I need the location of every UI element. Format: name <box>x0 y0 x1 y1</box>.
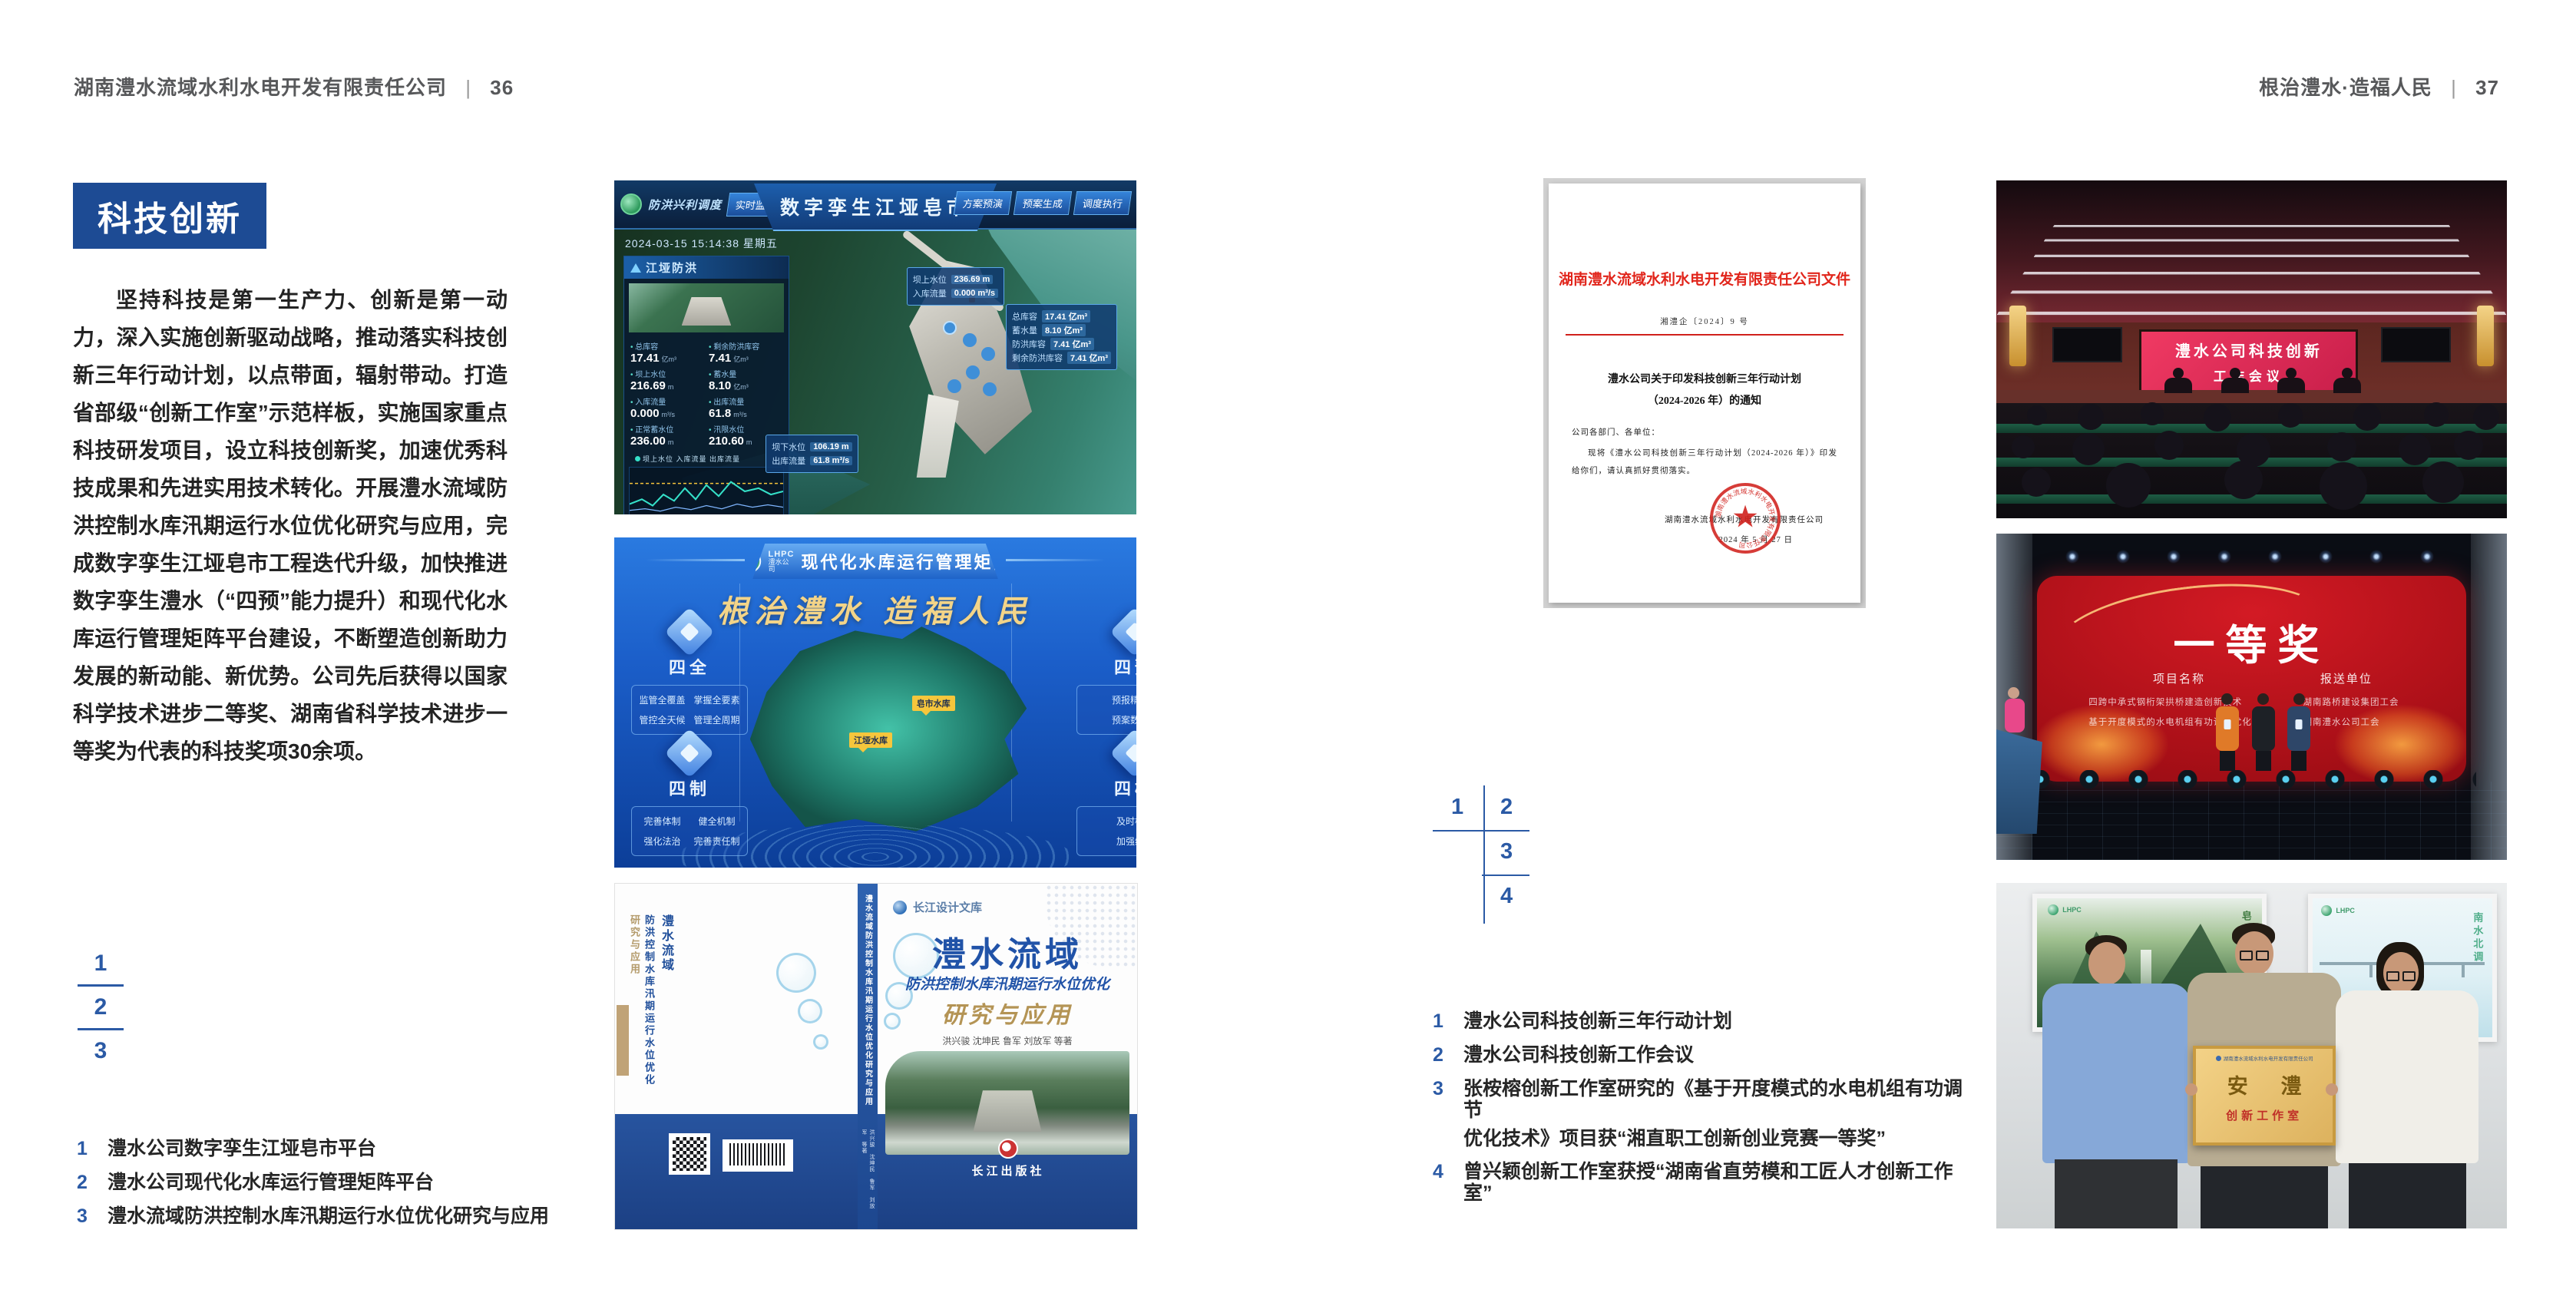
winner-silhouette <box>2287 693 2310 771</box>
caption-text: 澧水公司数字孪生江垭皂市平台 <box>107 1138 376 1160</box>
front-tail: 研究与应用 <box>878 996 1137 1030</box>
company-name: 湖南澧水流域水利水电开发有限责任公司 <box>74 76 447 99</box>
person-torso-blue-polo <box>2042 984 2191 1163</box>
caption-number: 1 <box>1433 1010 1451 1033</box>
module-panel: 完善体制 健全机制 强化法治 完善责任制 <box>631 806 748 856</box>
stat-cell: 蓄水量8.10亿m³ <box>709 368 782 392</box>
module-panel: 预报精准化 预案数字化 <box>1076 685 1136 735</box>
module-title: 四全 <box>631 654 748 679</box>
studio-plaque: 湖南澧水流域水利水电开发有限责任公司 安 澧 创新工作室 <box>2193 1046 2336 1146</box>
person-pants <box>2201 1166 2328 1228</box>
book-spine: 澧水流域防洪控制水库汛期运行水位优化研究与应用 洪兴骏 沈坤民 鲁军 刘放军 等… <box>858 884 878 1229</box>
photo-meeting: 澧水公司科技创新 工作会议 <box>1996 180 2507 518</box>
dam-thumbnail <box>629 283 784 332</box>
module-icon <box>664 607 714 656</box>
caption-text: 澧水流域防洪控制水库汛期运行水位优化研究与应用 <box>107 1205 549 1228</box>
figure-key-number: 2 <box>73 992 128 1023</box>
front-subtitle: 防洪控制水库汛期运行水位优化 <box>878 973 1137 994</box>
person-head <box>2088 942 2125 985</box>
page-left-header: 湖南澧水流域水利水电开发有限责任公司 | 36 <box>74 72 514 101</box>
publisher-brand: 长江设计文库 <box>893 899 982 915</box>
caption-number: 1 <box>77 1138 95 1160</box>
dashboard-topbar: 防洪兴利调度 实时监测 洪水预报 防洪预警 数字孪生江垭皂市 方案预演 预案生成… <box>614 180 1136 230</box>
figure-key-number: 1 <box>73 948 128 979</box>
nav-button[interactable]: 预案生成 <box>1014 191 1072 215</box>
header-separator: | <box>465 76 471 99</box>
intro-paragraph: 坚持科技是第一生产力、创新是第一动力，深入实施创新驱动战略，推动落实科技创新三年… <box>73 281 508 770</box>
header-wing <box>1006 559 1105 561</box>
caption-row: 2 澧水公司现代化水库运行管理矩阵平台 <box>77 1172 568 1194</box>
book-title-vertical: 澧水流域 <box>656 914 675 1106</box>
gate-markers <box>943 321 957 335</box>
figure-key-vline <box>1483 785 1485 924</box>
module-item: 预报精准化 <box>1082 693 1136 706</box>
module-title: 四预 <box>1076 654 1136 679</box>
person-silhouette <box>2221 378 2249 393</box>
page-number-left: 36 <box>490 76 514 99</box>
panel-header: 江垭防洪 <box>624 256 789 279</box>
module-panel: 及时检验 加强维护 <box>1076 806 1136 856</box>
caption-text: 张桉榕创新工作室研究的《基于开度模式的水电机组有功调节 优化技术》项目获“湘直职… <box>1463 1078 1970 1149</box>
figure-key-number: 4 <box>1500 884 1513 909</box>
module-title: 四制 <box>631 775 748 800</box>
caption-number: 2 <box>1433 1044 1451 1066</box>
tan-block <box>617 1005 629 1076</box>
presenter-silhouette <box>2252 693 2275 771</box>
dashboard-side-panel: 江垭防洪 总库容17.41亿m³ 剩余防洪库容7.41亿m³ 坝上水位216.6… <box>623 256 789 514</box>
module-icon <box>1109 728 1136 778</box>
host-silhouette <box>2008 687 2019 699</box>
figure-key-number: 3 <box>73 1036 128 1066</box>
document-title-line2: （2024-2026 年）的通知 <box>1549 392 1860 408</box>
award-unit: 湖南路桥建设集团工会 <box>2303 696 2399 708</box>
glasses-icon <box>2240 951 2269 960</box>
plaque-org-line: 湖南澧水流域水利水电开发有限责任公司 <box>2196 1054 2333 1062</box>
page-number-right: 37 <box>2475 76 2499 99</box>
chart-svg <box>630 468 783 514</box>
module-label: 防洪兴利调度 <box>648 197 722 213</box>
front-authors: 洪兴骏 沈坤民 鲁军 刘放军 等著 <box>878 1034 1137 1047</box>
dashboard-logo-icon <box>620 193 642 215</box>
figure-key-divider <box>78 1028 124 1030</box>
hand <box>2326 1083 2338 1096</box>
book-subtitle-vertical: 防洪控制水库汛期运行水位优化 <box>642 914 656 1106</box>
chart-legend: 坝上水位 入库流量 出库流量 <box>624 452 789 464</box>
seal-star-icon: ★ <box>1731 499 1759 535</box>
module-title: 四检 <box>1076 775 1136 800</box>
caption-row: 2 澧水公司科技创新工作会议 <box>1433 1044 1970 1066</box>
front-title: 澧水流域 <box>878 927 1137 976</box>
figure-key-number: 1 <box>1451 795 1463 820</box>
figure-key-number: 3 <box>1500 839 1513 865</box>
lectern <box>1996 729 2042 834</box>
audience-row <box>2012 435 2035 458</box>
platform-title: 现代化水库运行管理矩阵 <box>801 549 1012 574</box>
back-cover-title: 澧水流域 防洪控制水库汛期运行水位优化 研究与应用 <box>627 914 675 1106</box>
desk-row <box>1996 458 2507 467</box>
caption-row: 1 澧水公司科技创新三年行动计划 <box>1433 1010 1970 1033</box>
caption-number: 3 <box>77 1205 95 1228</box>
nav-button[interactable]: 方案预演 <box>954 191 1012 215</box>
caption-list-right: 1 澧水公司科技创新三年行动计划 2 澧水公司科技创新工作会议 3 张桉榕创新工… <box>1433 1010 1970 1215</box>
audience-row <box>2022 468 2051 497</box>
bubble-decor <box>813 1034 828 1050</box>
module-siyu: 四预 预报精准化 预案数字化 <box>1076 614 1136 735</box>
host-silhouette <box>2005 699 2025 732</box>
bubble-decor <box>776 953 816 993</box>
module-item: 监管全覆盖 <box>637 693 688 706</box>
figure-key-right: 1 2 3 4 <box>1433 785 1536 927</box>
caption-text: 澧水公司现代化水库运行管理矩阵平台 <box>107 1172 434 1194</box>
person-silhouette <box>2277 378 2305 393</box>
poster-logo: LHPC <box>2048 904 2082 915</box>
wall-tv <box>2052 327 2121 362</box>
hand <box>2185 1083 2197 1096</box>
logo-sub: 澧水公司 <box>769 559 795 573</box>
person-silhouette <box>2164 378 2192 393</box>
document-title-line1: 澧水公司关于印发科技创新三年行动计划 <box>1549 371 1860 386</box>
stat-grid: 总库容17.41亿m³ 剩余防洪库容7.41亿m³ 坝上水位216.69m 蓄水… <box>624 337 789 452</box>
person-silhouette <box>2333 378 2361 393</box>
caption-text: 曾兴颖创新工作室获授“湖南省直劳模和工匠人才创新工作室” <box>1463 1161 1970 1204</box>
spine-title: 澧水流域防洪控制水库汛期运行水位优化研究与应用 <box>862 894 874 1125</box>
person-pants <box>2349 1163 2466 1229</box>
winner-silhouette <box>2216 693 2239 771</box>
caption-text: 澧水公司科技创新工作会议 <box>1463 1044 1694 1066</box>
stat-cell: 剩余防洪库容7.41亿m³ <box>709 340 782 365</box>
water-level-tooltip: 坝上水位236.69 m 入库流量0.000 m³/s <box>907 267 1004 306</box>
spine-authors: 洪兴骏 沈坤民 鲁军 刘放军 等著 <box>860 1129 875 1214</box>
dashboard-topbar-right: 方案预演 预案生成 调度执行 <box>955 191 1135 215</box>
caption-row: 3 澧水流域防洪控制水库汛期运行水位优化研究与应用 <box>77 1205 568 1228</box>
cover-dam-shape <box>973 1090 1041 1132</box>
module-item: 完善体制 <box>637 815 688 828</box>
figure-key-hline <box>1433 830 1529 832</box>
sail-icon <box>630 263 641 273</box>
publisher-mark: 长江出版社 <box>916 1139 1100 1179</box>
caption-row: 3 张桉榕创新工作室研究的《基于开度模式的水电机组有功调节 优化技术》项目获“湘… <box>1433 1078 1970 1149</box>
plaque-logo-icon <box>2216 1056 2221 1061</box>
photo-award: 一等奖 项目名称 报送单位 四跨中承式钢桁架拱桥建造创新技术 湖南路桥建设集团工… <box>1996 534 2507 860</box>
stat-cell: 入库流量0.000m³/s <box>630 395 704 420</box>
ceiling-lights <box>1996 225 2507 316</box>
person-torso-white-tee <box>2336 990 2478 1163</box>
award-col-header: 报送单位 <box>2320 670 2373 686</box>
figure-key-left: 1 2 3 <box>73 948 128 1066</box>
figure-dashboard: 防洪兴利调度 实时监测 洪水预报 防洪预警 数字孪生江垭皂市 方案预演 预案生成… <box>614 180 1136 514</box>
module-sizhi: 四制 完善体制 健全机制 强化法治 完善责任制 <box>631 736 748 856</box>
brand-label: 长江设计文库 <box>913 899 982 915</box>
header-separator: | <box>2451 76 2457 99</box>
figure-key-hline <box>1482 875 1529 876</box>
person-pants <box>2055 1159 2178 1228</box>
stat-cell: 出库流量61.8m³/s <box>709 395 782 420</box>
module-item: 强化法治 <box>637 835 688 848</box>
award-project: 基于开度模式的水电机组有功调节优化技术 <box>2088 716 2271 728</box>
dashboard-timestamp: 2024-03-15 15:14:38 星期五 <box>625 236 778 251</box>
award-title: 一等奖 <box>2037 611 2466 672</box>
caption-number: 3 <box>1433 1078 1451 1149</box>
stat-cell: 正常蓄水位236.00m <box>630 423 704 448</box>
caption-list-left: 1 澧水公司数字孪生江垭皂市平台 2 澧水公司现代化水库运行管理矩阵平台 3 澧… <box>77 1138 568 1239</box>
qr-pattern <box>673 1137 706 1171</box>
award-col-header: 项目名称 <box>2153 670 2205 686</box>
caption-row: 4 曾兴颖创新工作室获授“湖南省直劳模和工匠人才创新工作室” <box>1433 1161 1970 1204</box>
figure-book-cover: 澧水流域 防洪控制水库汛期运行水位优化 研究与应用 澧水流域防洪控制水库汛期运行… <box>614 883 1138 1230</box>
stage-light-row <box>2027 770 2476 790</box>
caption-number: 2 <box>77 1172 95 1194</box>
barcode <box>723 1139 793 1172</box>
stat-cell: 坝上水位216.69m <box>630 368 704 392</box>
panel-flood: 江垭防洪 总库容17.41亿m³ 剩余防洪库容7.41亿m³ 坝上水位216.6… <box>623 256 789 514</box>
caption-row: 1 澧水公司数字孪生江垭皂市平台 <box>77 1138 568 1160</box>
photo-studio: LHPC 皂市水库 LHPC 南水北调 湖南澧水流域水利水电开发有限责任公司 安… <box>1996 883 2507 1228</box>
module-item: 预案数字化 <box>1082 713 1136 726</box>
logo-abbr: LHPC <box>769 551 795 559</box>
map-label: 皂市水库 <box>912 696 955 711</box>
official-seal: 湖南澧水流域水利水电开发有限责任公司 ★ <box>1708 481 1782 555</box>
header-wing <box>646 559 745 561</box>
capacity-tooltip: 总库容17.41 亿m³ 蓄水量8.10 亿m³ 防洪库容7.41 亿m³ 剩余… <box>1006 304 1117 370</box>
document-redhead: 湖南澧水流域水利水电开发有限责任公司文件 <box>1549 268 1860 289</box>
document-number: 湘澧企〔2024〕9 号 <box>1549 316 1860 327</box>
dam-thumb-shape <box>682 297 732 326</box>
desk-row <box>1996 494 2507 504</box>
page-motto: 根治澧水·造福人民 <box>2259 76 2432 99</box>
qr-code <box>669 1133 710 1175</box>
document-sheet: 湖南澧水流域水利水电开发有限责任公司文件 湘澧企〔2024〕9 号 澧水公司关于… <box>1549 184 1860 603</box>
book-tail-vertical: 研究与应用 <box>627 914 642 1106</box>
screen-line1: 澧水公司科技创新 <box>2141 339 2356 361</box>
stage-floor <box>1996 782 2507 860</box>
figure-matrix-platform: LHPC 澧水公司 现代化水库运行管理矩阵 根治澧水 造福人民 皂市水库 江垭水… <box>614 537 1136 868</box>
poster-logo: LHPC <box>2321 905 2355 916</box>
module-icon <box>1109 607 1136 656</box>
document-red-rule <box>1566 334 1844 336</box>
module-sijian: 四检 及时检验 加强维护 <box>1076 736 1136 856</box>
wall-sconce <box>2009 306 2027 366</box>
module-item: 管理全周期 <box>691 713 742 726</box>
module-icon <box>664 728 714 778</box>
module-item: 掌握全要素 <box>691 693 742 706</box>
stat-cell: 总库容17.41亿m³ <box>630 340 704 365</box>
platform-header: LHPC 澧水公司 现代化水库运行管理矩阵 <box>752 544 998 579</box>
bubble-decor <box>798 999 822 1023</box>
module-item: 管控全天候 <box>637 713 688 726</box>
document-body: 现将《澧水公司科技创新三年行动计划（2024-2026 年）》印发给你们，请认真… <box>1572 445 1837 480</box>
lhpc-logo-icon <box>2048 904 2058 915</box>
desk-row <box>1996 424 2507 433</box>
plaque-sub-text: 创新工作室 <box>2196 1107 2333 1123</box>
legend-dot <box>635 456 640 461</box>
tailwater-tooltip: 坝下水位106.19 m 出库流量61.8 m³/s <box>766 435 858 473</box>
lhpc-logo-icon <box>2321 905 2332 916</box>
module-item: 加强维护 <box>1082 835 1136 848</box>
wall-tv <box>2381 327 2450 362</box>
wall-sconce <box>2477 306 2495 366</box>
figure-key-number: 2 <box>1500 795 1513 820</box>
caption-line2: 优化技术》项目获“湘直职工创新创业竞赛一等奖” <box>1463 1128 1970 1149</box>
map-label: 江垭水库 <box>849 732 892 748</box>
publisher-name: 长江出版社 <box>971 1165 1044 1178</box>
nav-button[interactable]: 调度执行 <box>1073 191 1132 215</box>
module-siquan: 四全 监管全覆盖 掌握全要素 管控全天候 管理全周期 <box>631 614 748 735</box>
award-unit: 湖南澧水公司工会 <box>2303 716 2380 728</box>
figure-document: 湖南澧水流域水利水电开发有限责任公司文件 湘澧企〔2024〕9 号 澧水公司关于… <box>1543 178 1866 608</box>
caption-line1: 张桉榕创新工作室研究的《基于开度模式的水电机组有功调节 <box>1463 1078 1970 1121</box>
module-item: 及时检验 <box>1082 815 1136 828</box>
plaque-main-text: 安 澧 <box>2196 1070 2333 1099</box>
audience-row <box>2027 405 2047 425</box>
lhpc-logo-text: LHPC 澧水公司 <box>769 551 795 573</box>
brand-logo-icon <box>893 901 907 914</box>
caption-number: 4 <box>1433 1161 1451 1204</box>
glasses-icon <box>2386 971 2416 981</box>
publisher-logo-icon <box>998 1139 1018 1159</box>
module-panel: 监管全覆盖 掌握全要素 管控全天候 管理全周期 <box>631 685 748 735</box>
panel-title: 江垭防洪 <box>646 260 698 276</box>
page-right-header: 根治澧水·造福人民 | 37 <box>2259 72 2499 101</box>
module-item: 健全机制 <box>691 815 742 828</box>
figure-key-divider <box>78 984 124 987</box>
water-level-chart <box>629 467 784 514</box>
caption-text: 澧水公司科技创新三年行动计划 <box>1463 1010 1732 1033</box>
document-salutation: 公司各部门、各单位： <box>1572 426 1660 438</box>
module-item: 完善责任制 <box>691 835 742 848</box>
section-badge: 科技创新 <box>73 183 266 249</box>
